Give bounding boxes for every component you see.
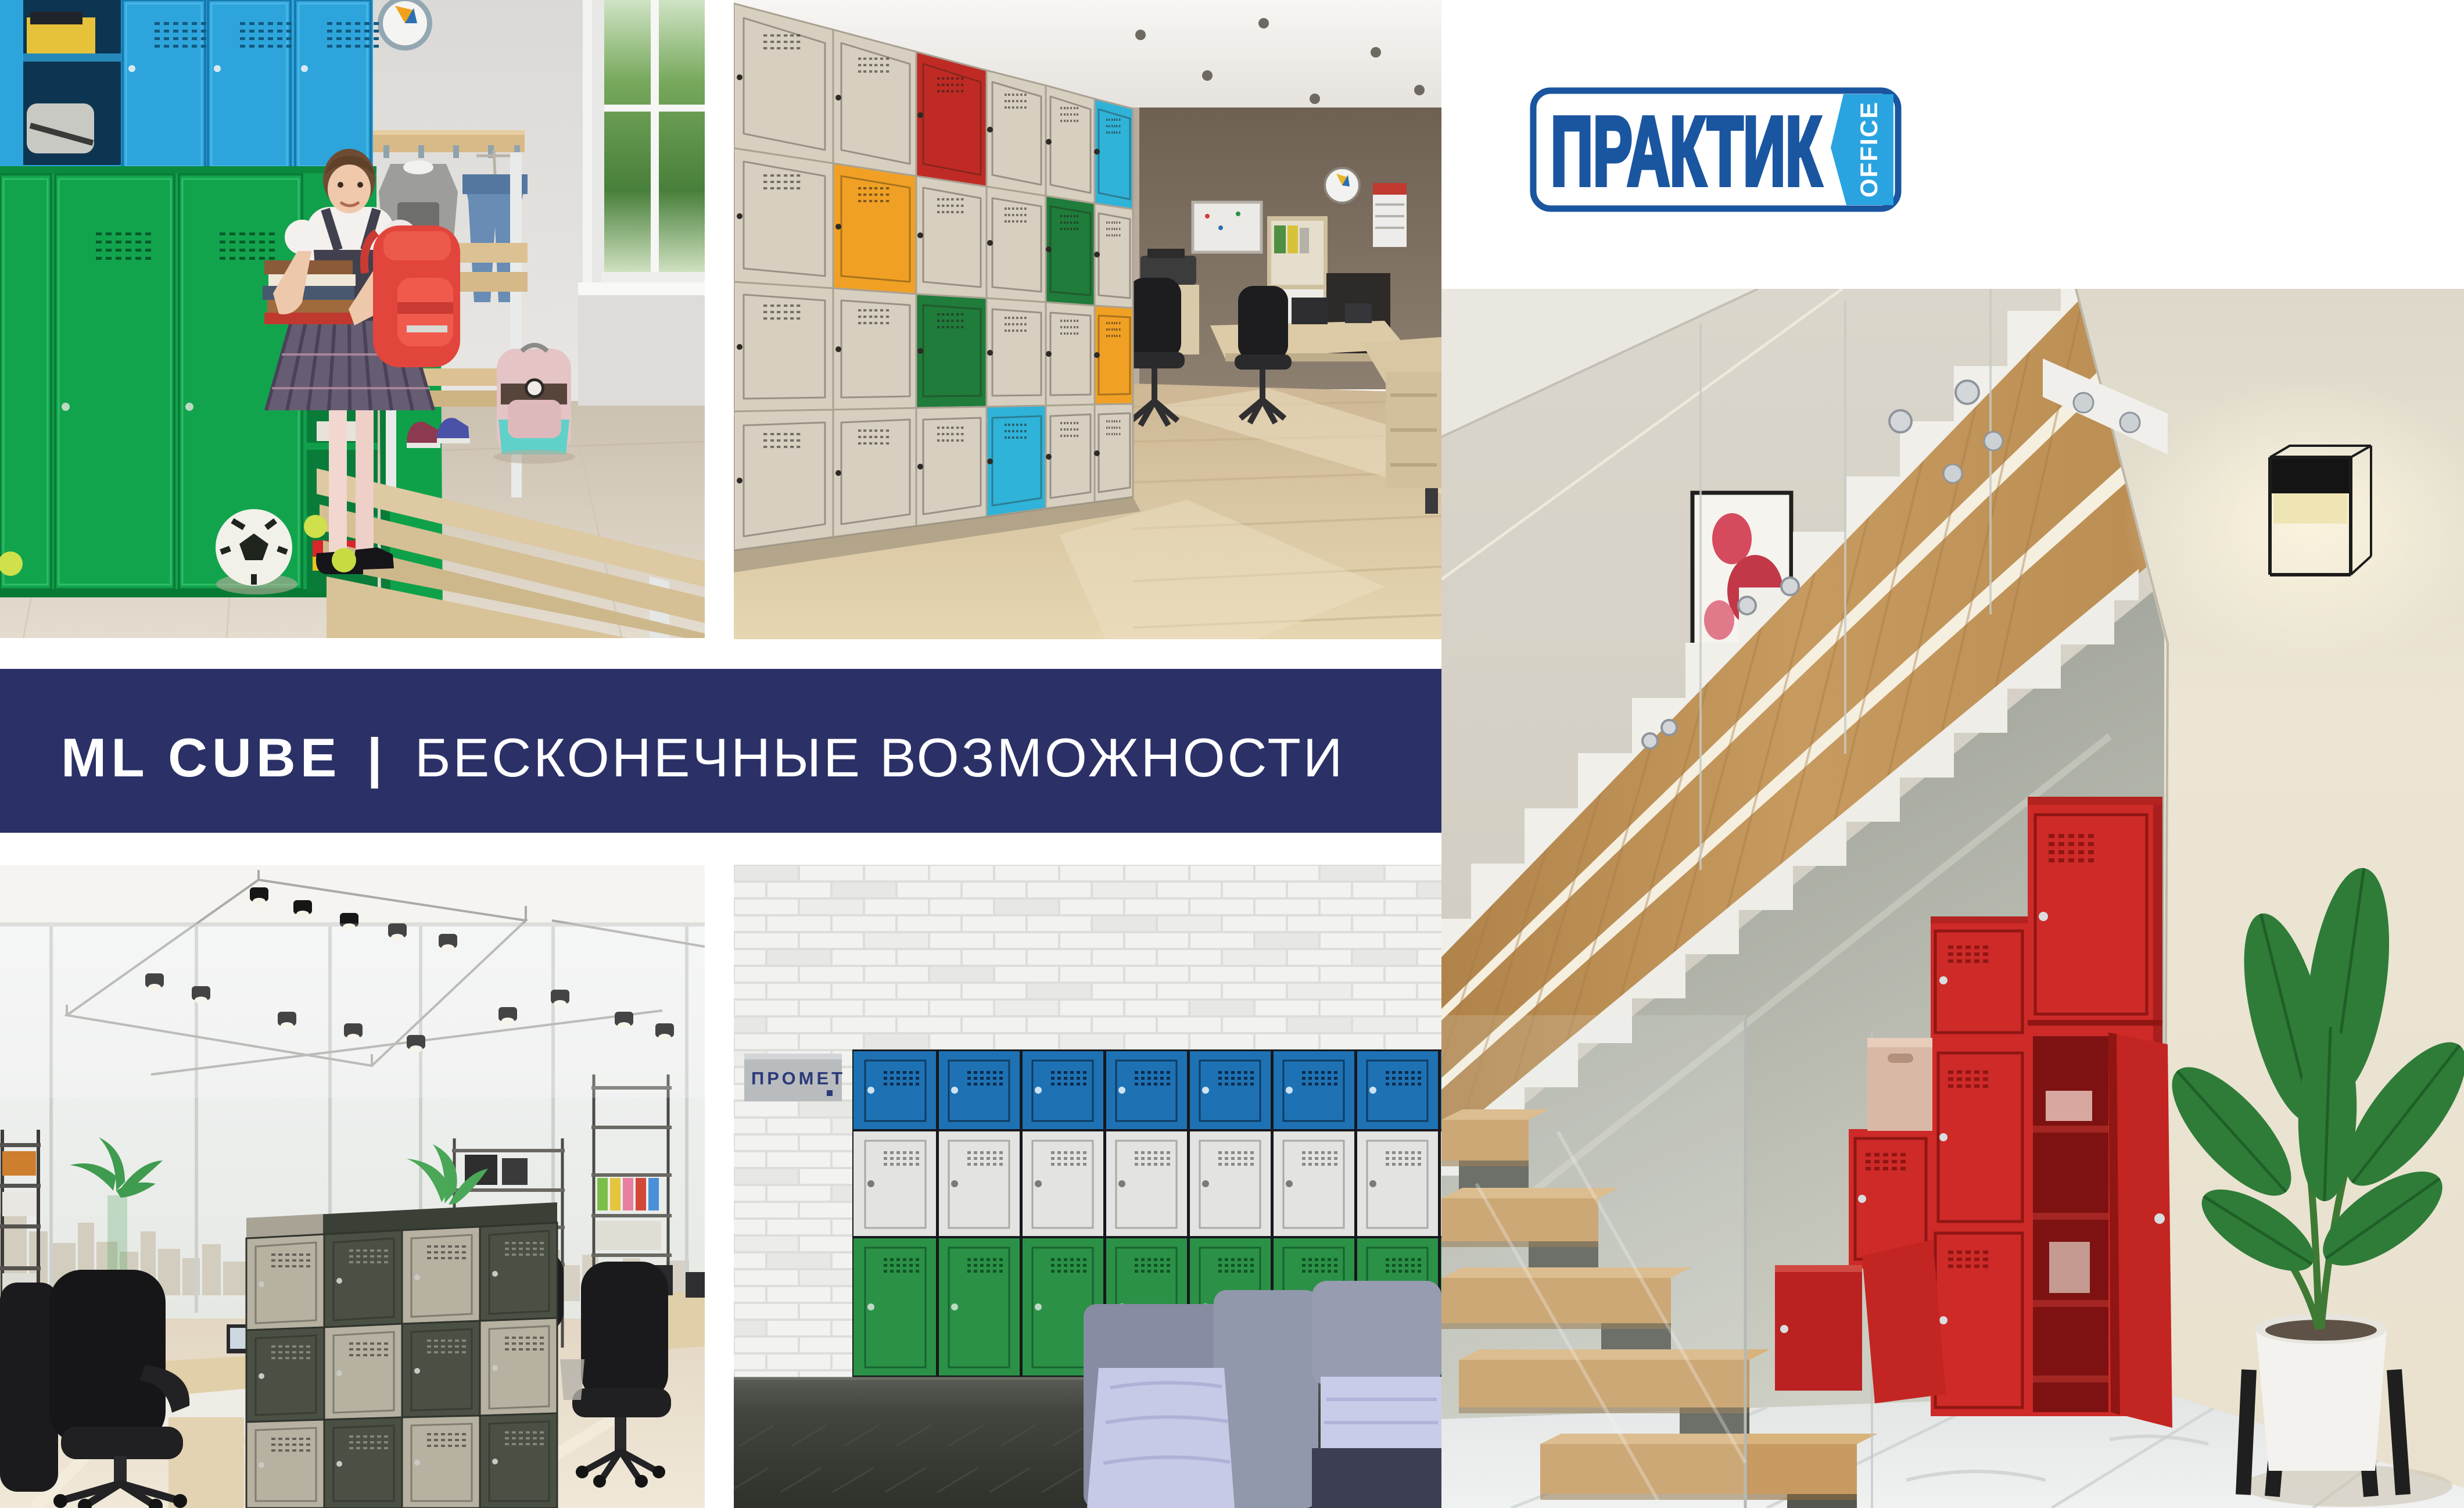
svg-text:ПРАКТИК: ПРАКТИК — [1551, 96, 1821, 206]
svg-text:OFFICE: OFFICE — [1855, 101, 1882, 198]
svg-text:ПРОМЕТ: ПРОМЕТ — [751, 1068, 845, 1088]
